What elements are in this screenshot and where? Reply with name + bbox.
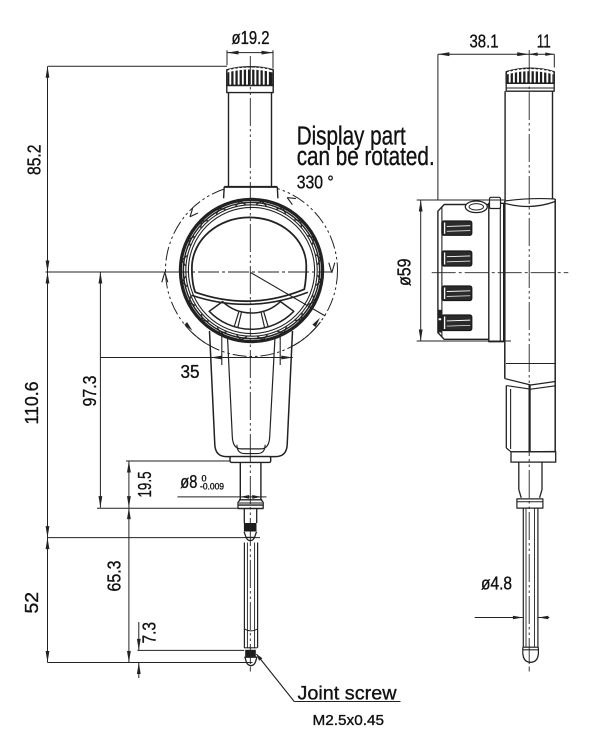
- svg-text:ø19.2: ø19.2: [232, 27, 270, 48]
- svg-text:85.2: 85.2: [24, 145, 45, 176]
- svg-text:97.3: 97.3: [79, 376, 100, 407]
- svg-text:19.5: 19.5: [134, 472, 155, 498]
- svg-text:110.6: 110.6: [21, 382, 42, 425]
- svg-text:11: 11: [537, 31, 551, 52]
- svg-text:can be rotated.: can be rotated.: [297, 143, 435, 171]
- svg-text:M2.5x0.45: M2.5x0.45: [313, 712, 385, 729]
- svg-text:ø59: ø59: [394, 259, 415, 287]
- svg-text:7.3: 7.3: [138, 622, 159, 644]
- svg-text:330 °: 330 °: [297, 171, 334, 192]
- svg-text:ø8: ø8: [180, 471, 197, 492]
- svg-text:ø4.8: ø4.8: [481, 572, 512, 593]
- svg-text:Joint screw: Joint screw: [298, 682, 398, 704]
- svg-text:-0.009: -0.009: [200, 482, 224, 493]
- svg-text:38.1: 38.1: [470, 31, 499, 52]
- svg-text:65.3: 65.3: [104, 561, 125, 592]
- svg-text:35: 35: [181, 361, 200, 382]
- svg-text:52: 52: [21, 592, 42, 614]
